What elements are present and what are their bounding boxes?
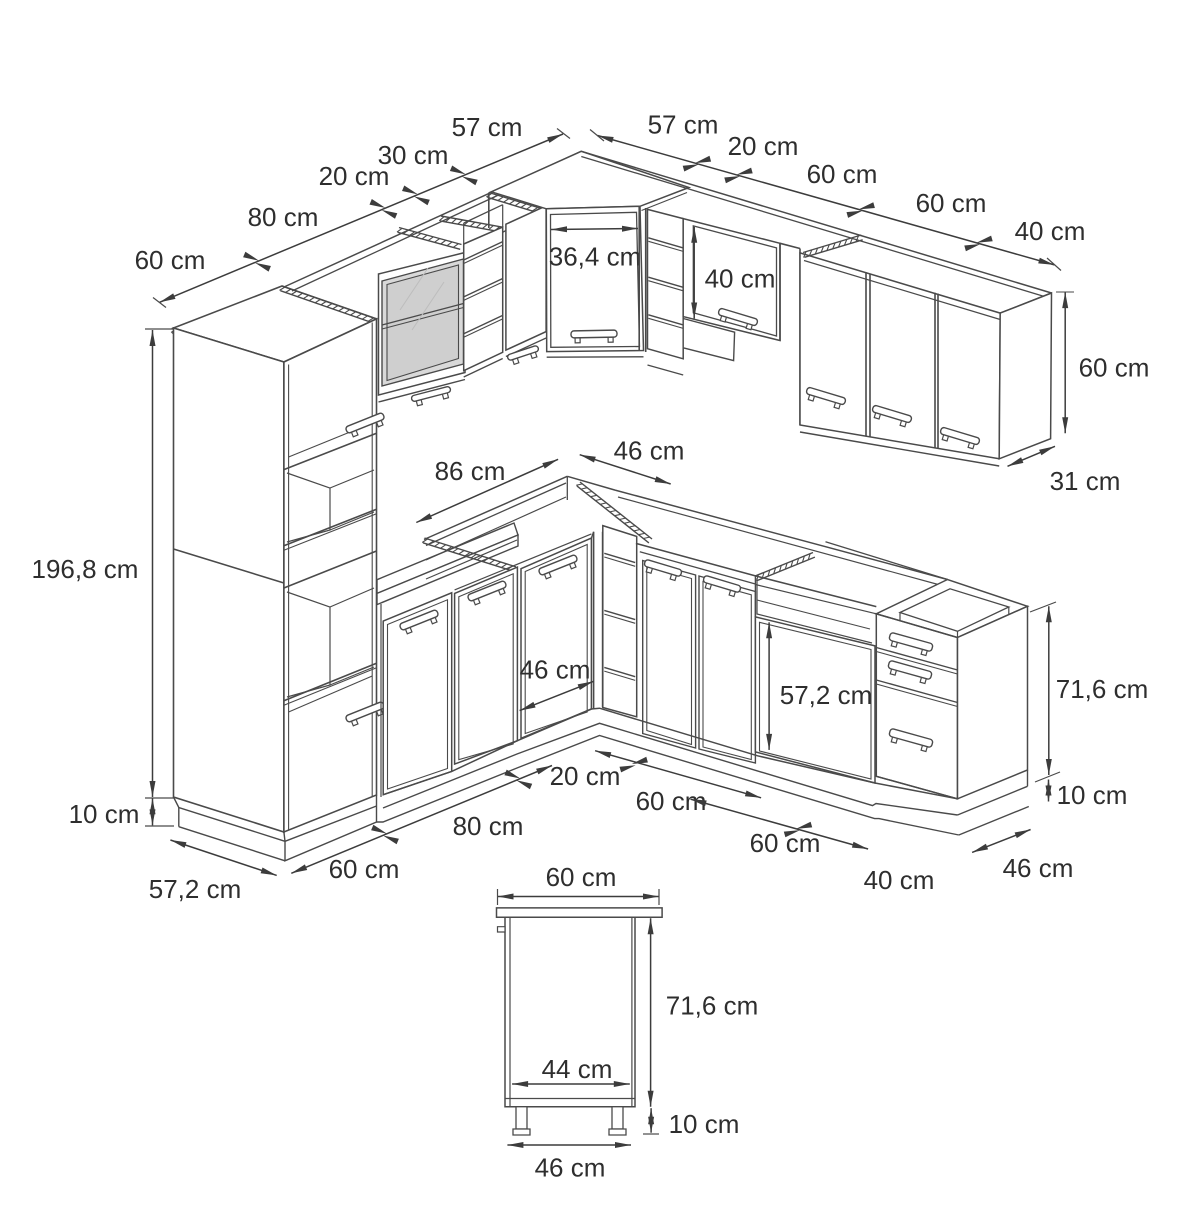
- svg-text:60 cm: 60 cm: [807, 159, 878, 189]
- svg-text:20 cm: 20 cm: [728, 131, 799, 161]
- svg-text:46 cm: 46 cm: [535, 1153, 606, 1183]
- svg-text:46 cm: 46 cm: [1003, 853, 1074, 883]
- svg-text:46 cm: 46 cm: [520, 655, 591, 685]
- svg-text:60 cm: 60 cm: [750, 828, 821, 858]
- svg-text:57 cm: 57 cm: [452, 112, 523, 142]
- svg-text:57,2 cm: 57,2 cm: [780, 680, 873, 710]
- svg-text:60 cm: 60 cm: [329, 854, 400, 884]
- svg-text:44 cm: 44 cm: [542, 1054, 613, 1084]
- svg-text:40 cm: 40 cm: [864, 865, 935, 895]
- svg-text:60 cm: 60 cm: [1079, 353, 1150, 383]
- svg-text:10 cm: 10 cm: [669, 1109, 740, 1139]
- svg-text:10 cm: 10 cm: [69, 799, 140, 829]
- svg-text:60 cm: 60 cm: [916, 188, 987, 218]
- svg-text:46 cm: 46 cm: [614, 436, 685, 466]
- svg-text:36,4 cm: 36,4 cm: [549, 242, 642, 272]
- svg-text:57 cm: 57 cm: [648, 110, 719, 140]
- svg-text:30 cm: 30 cm: [378, 140, 449, 170]
- svg-text:60 cm: 60 cm: [546, 862, 617, 892]
- svg-text:40 cm: 40 cm: [705, 264, 776, 294]
- svg-text:40 cm: 40 cm: [1015, 216, 1086, 246]
- svg-text:57,2 cm: 57,2 cm: [149, 874, 242, 904]
- svg-text:71,6 cm: 71,6 cm: [1056, 674, 1149, 704]
- svg-text:10 cm: 10 cm: [1057, 780, 1128, 810]
- svg-text:196,8 cm: 196,8 cm: [32, 554, 139, 584]
- svg-text:71,6 cm: 71,6 cm: [666, 991, 759, 1021]
- svg-text:80 cm: 80 cm: [453, 811, 524, 841]
- svg-text:80 cm: 80 cm: [248, 202, 319, 232]
- svg-text:60 cm: 60 cm: [135, 245, 206, 275]
- svg-text:86 cm: 86 cm: [435, 456, 506, 486]
- svg-text:31 cm: 31 cm: [1050, 466, 1121, 496]
- svg-text:20 cm: 20 cm: [550, 761, 621, 791]
